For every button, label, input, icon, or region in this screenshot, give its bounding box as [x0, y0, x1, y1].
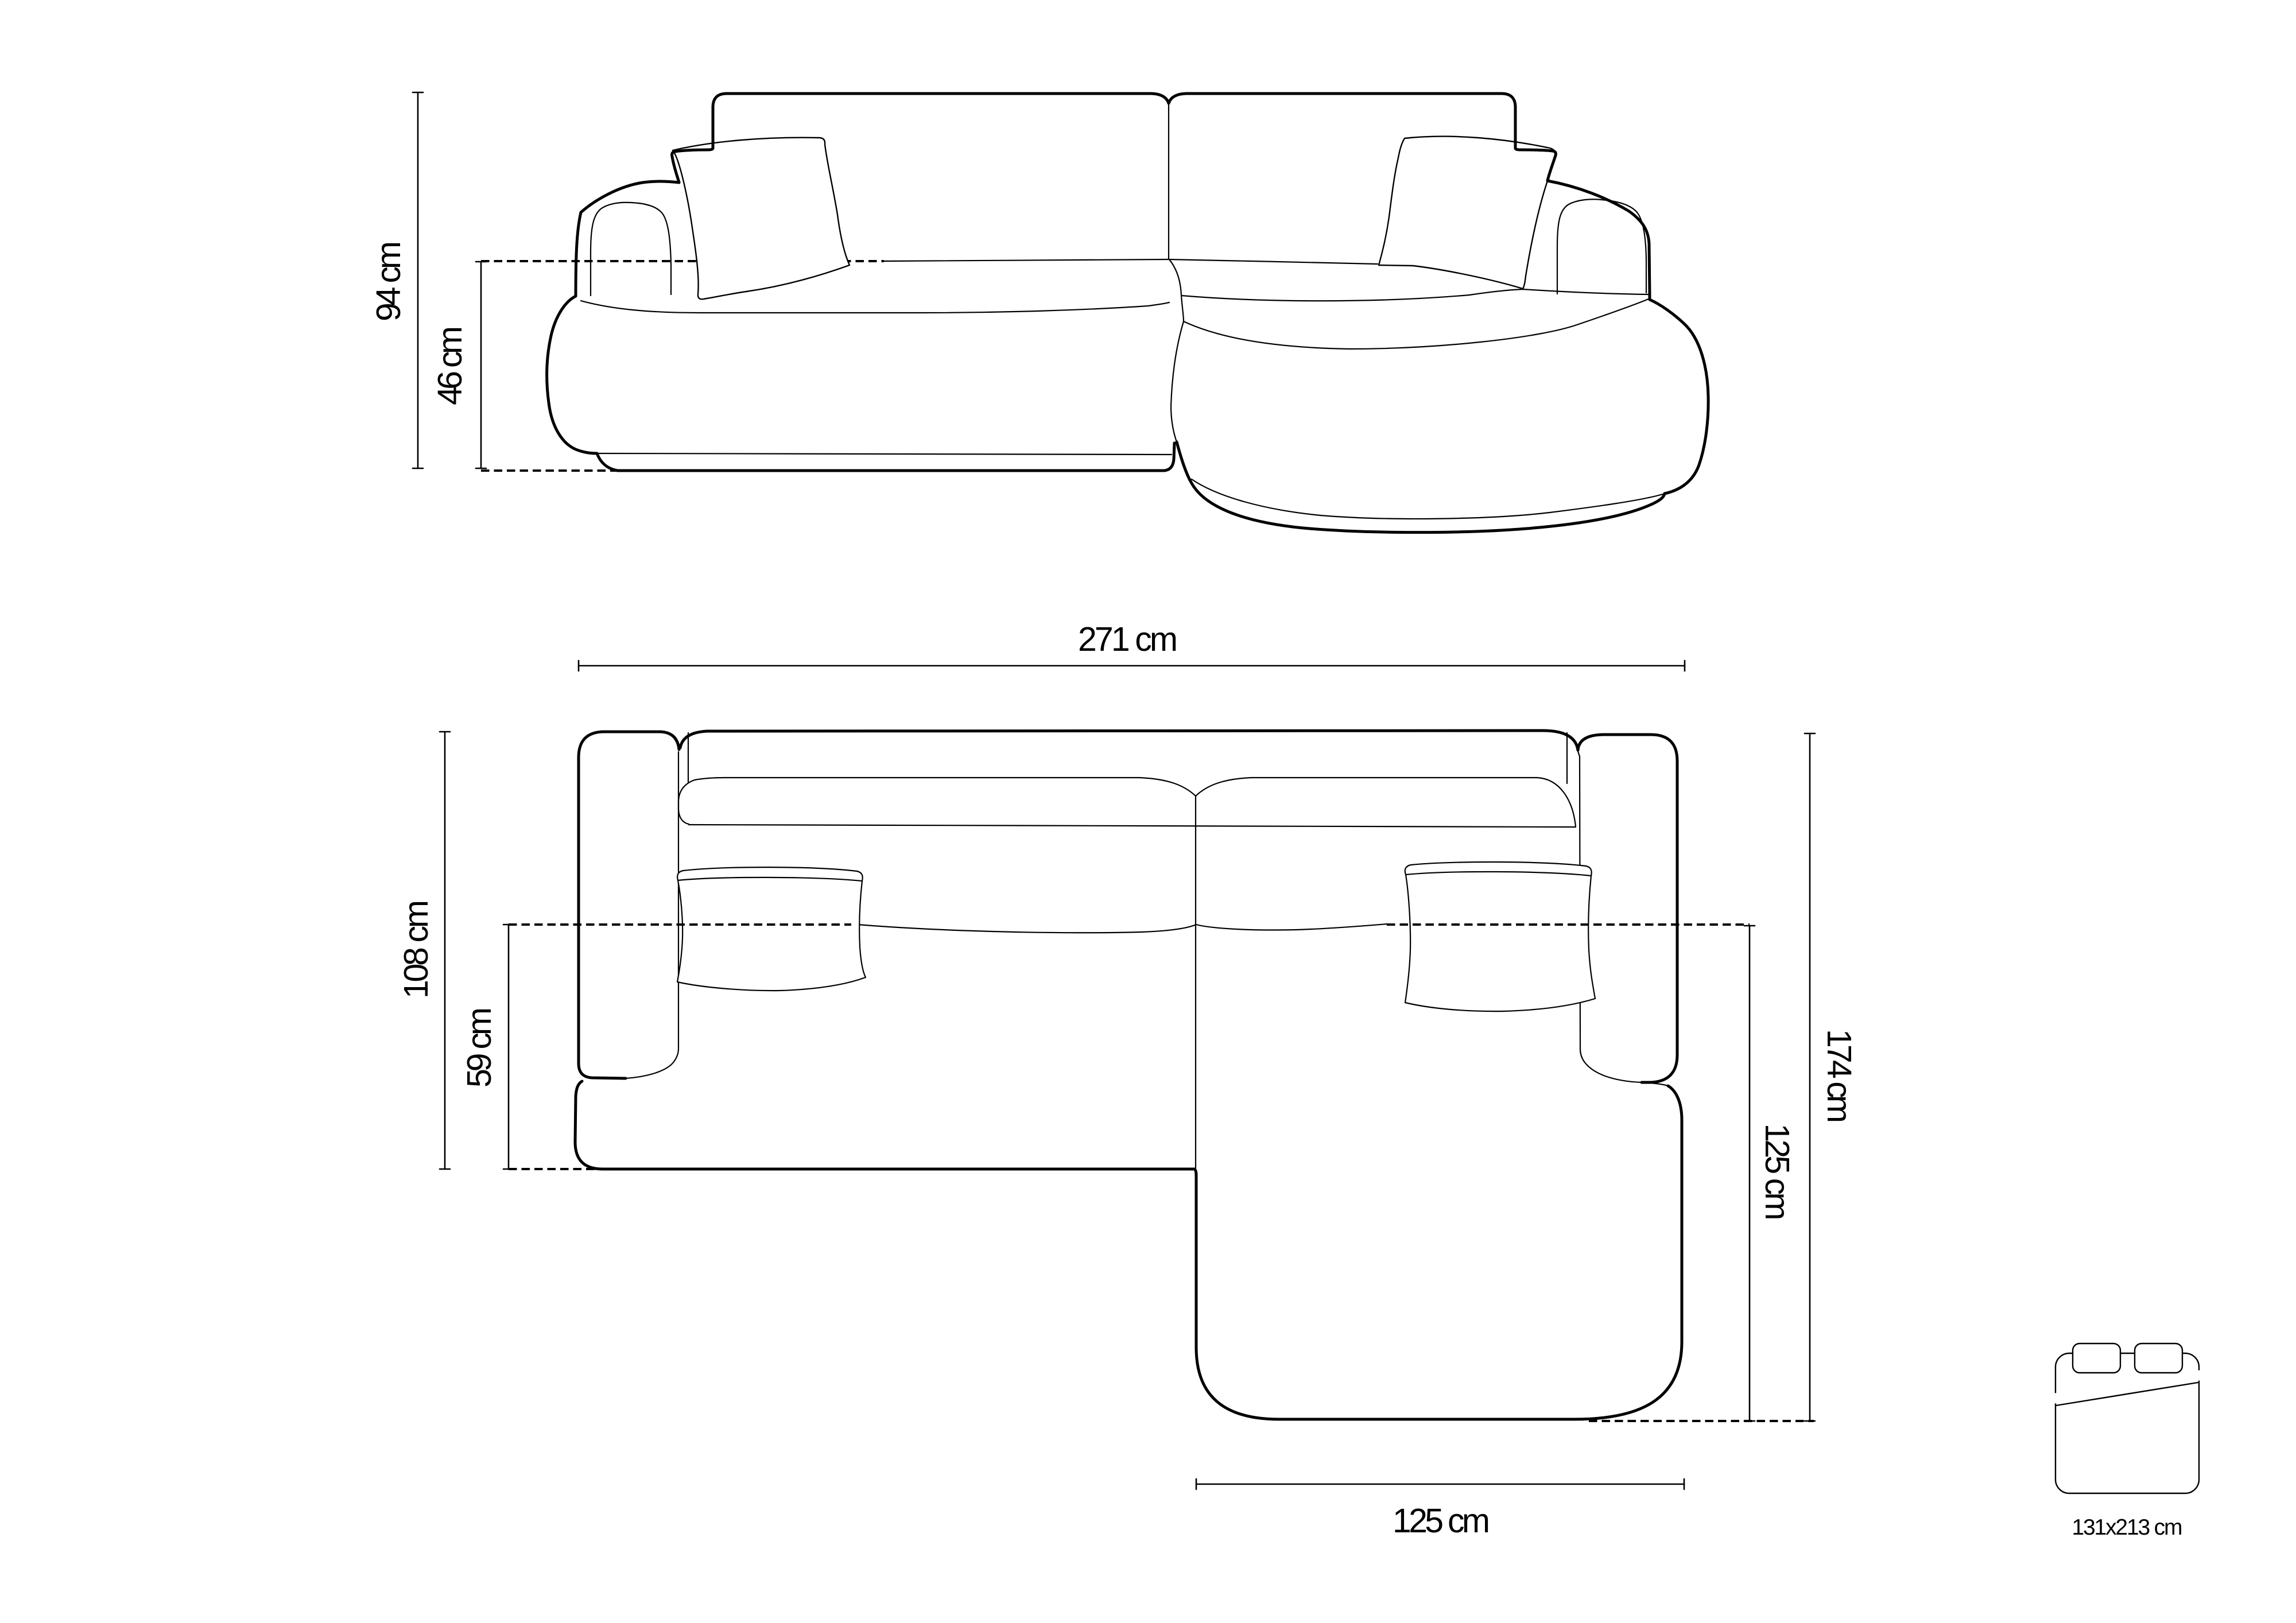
svg-text:108 cm: 108 cm — [397, 900, 435, 999]
svg-text:131x213 cm: 131x213 cm — [2072, 1515, 2183, 1540]
svg-text:59 cm: 59 cm — [460, 1007, 498, 1088]
svg-text:125 cm: 125 cm — [1758, 1124, 1796, 1221]
svg-text:125 cm: 125 cm — [1393, 1502, 1490, 1540]
svg-text:271 cm: 271 cm — [1078, 620, 1178, 658]
svg-text:174 cm: 174 cm — [1820, 1029, 1858, 1123]
svg-text:46 cm: 46 cm — [431, 326, 469, 405]
svg-text:94 cm: 94 cm — [370, 241, 408, 321]
